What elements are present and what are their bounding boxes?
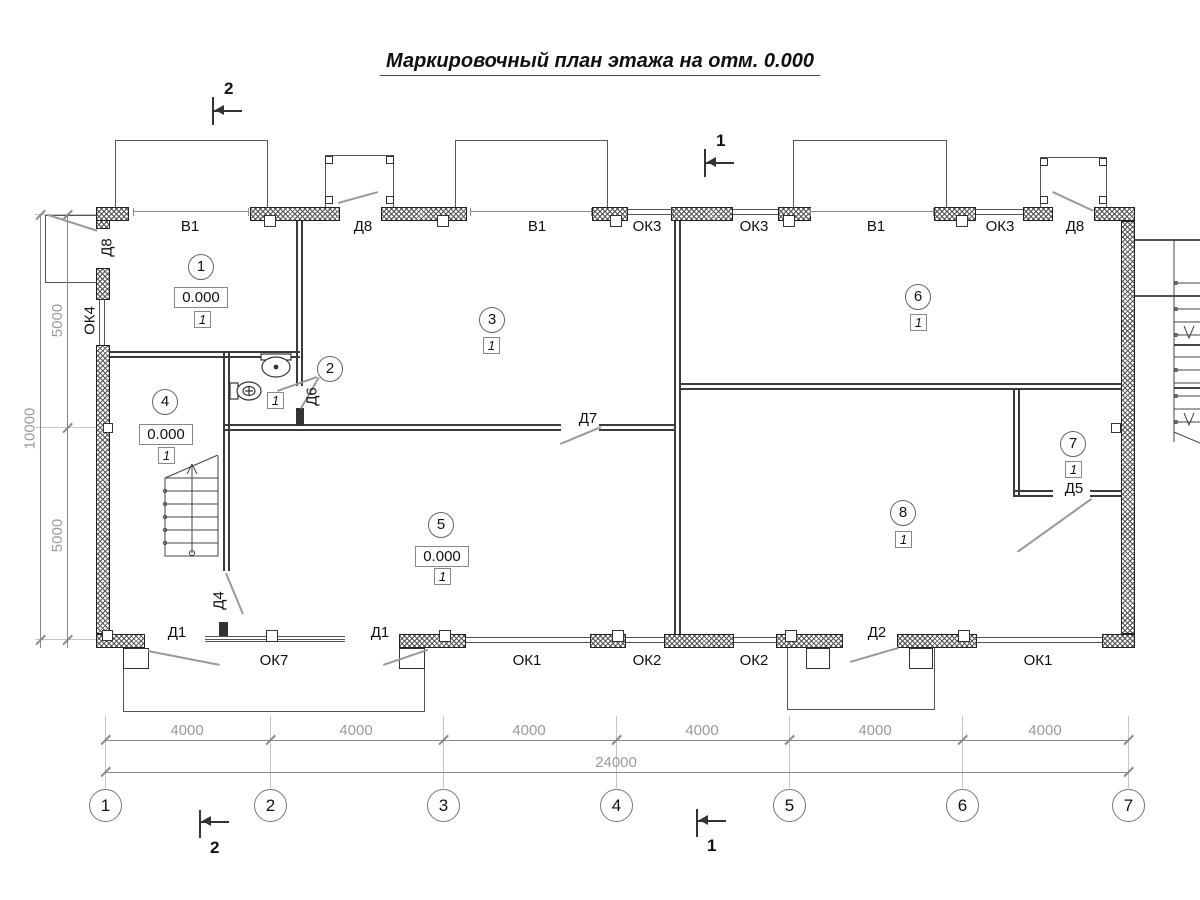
window-ok2 [734,637,776,643]
opening-label-ok3: ОК3 [978,218,1022,235]
room-finish-mark: 1 [1065,461,1082,478]
opening-label-ok2: ОК2 [625,652,669,669]
wall [381,207,467,221]
drawing-title: Маркировочный план этажа на отм. 0.000 [380,50,820,76]
side-porch [45,215,97,283]
dimension-value: 5000 [49,508,66,563]
opening-label-d1: Д1 [155,624,199,641]
section-mark-line [199,810,201,838]
dimension-value: 4000 [845,722,905,739]
opening-label-ok3: ОК3 [732,218,776,235]
section-arrow-icon [707,157,716,167]
opening-label-ok1: ОК1 [1016,652,1060,669]
window-ok3 [976,209,1023,215]
dimension-total: 10000 [22,394,39,464]
extension-line [443,716,444,788]
pilaster [264,215,276,227]
room-number: 2 [317,356,343,382]
opening-label-d8: Д8 [1053,218,1097,235]
pilaster [266,630,278,642]
partition [1013,490,1053,497]
window-ok1 [466,637,590,643]
axis-bubble: 4 [600,789,633,822]
opening-label-d2: Д2 [855,624,899,641]
door-swing-d4 [226,573,244,614]
room-finish-mark: 1 [483,337,500,354]
dimension-value: 4000 [326,722,386,739]
canopy-outline [793,140,947,207]
door-label-d6: Д6 [304,375,321,419]
canopy-post [1040,196,1048,204]
room-finish-mark: 1 [434,568,451,585]
section-arrow-icon [699,815,708,825]
stairs [160,448,224,560]
wall [96,345,110,634]
partition [1013,390,1020,497]
window-ok1 [977,637,1102,643]
pilaster [102,630,113,641]
canopy-outline [115,140,268,207]
room-number: 8 [890,500,916,526]
wall [399,634,466,648]
room-number: 7 [1060,431,1086,457]
pilaster [783,215,795,227]
entrance-canopy [325,155,394,207]
pilaster [1111,423,1121,433]
window-v1 [470,211,592,212]
window-ok2 [626,637,664,643]
opening-label-d8: Д8 [341,218,385,235]
opening-label-ok4: ОК4 [82,299,99,343]
window-ok4 [99,300,105,345]
axis-bubble: 2 [254,789,287,822]
room-number: 6 [905,284,931,310]
partition [223,424,561,431]
door-label-d4: Д4 [211,579,228,623]
opening-label-ok2: ОК2 [732,652,776,669]
pilaster [612,630,624,642]
canopy-post [325,196,333,204]
canopy-post [1040,158,1048,166]
pilaster [958,630,970,642]
entrance-canopy [1040,157,1107,207]
room-number: 5 [428,512,454,538]
extension-line [270,716,271,788]
room-number: 3 [479,307,505,333]
room-finish-mark: 1 [194,311,211,328]
section-label: 2 [224,79,233,99]
room-finish-mark: 1 [895,531,912,548]
window-v1 [133,211,249,212]
room-number: 4 [152,389,178,415]
extension-line [789,716,790,788]
pilaster [785,630,797,642]
room-finish-mark: 1 [910,314,927,331]
drawing-title-wrap: Маркировочный план этажа на отм. 0.000 [0,50,1200,73]
opening-label-v1: В1 [854,218,898,235]
wall [1102,634,1135,648]
window-v1 [810,211,934,212]
room-elevation: 0.000 [415,546,469,567]
axis-bubble: 7 [1112,789,1145,822]
wall [934,207,976,221]
pilaster [956,215,968,227]
porch-step [909,648,933,669]
pilaster [103,423,113,433]
wall [96,207,129,221]
wall [671,207,733,221]
porch-step [123,648,149,669]
canopy-post [1099,196,1107,204]
opening-label-ok1: ОК1 [505,652,549,669]
dimension-value: 4000 [499,722,559,739]
axis-bubble: 1 [89,789,122,822]
wall [1121,221,1135,634]
canopy-post [1099,158,1107,166]
dimension-value: 5000 [49,293,66,348]
wall [1023,207,1053,221]
window-ok3 [733,209,778,215]
axis-bubble: 5 [773,789,806,822]
opening-label-ok7: ОК7 [252,652,296,669]
dimension-total: 24000 [586,754,646,771]
opening-label-v1: В1 [168,218,212,235]
pilaster [610,215,622,227]
pilaster [439,630,451,642]
door-swing-d5 [1017,498,1092,552]
canopy-outline [455,140,608,207]
section-arrow-icon [215,105,224,115]
door-swing-d7 [560,426,601,444]
fire-escape-stair [1162,230,1200,445]
section-label: 1 [716,131,725,151]
extension-line [962,716,963,788]
opening-label-d8: Д8 [99,226,116,270]
door-label-d7: Д7 [566,410,610,427]
opening-label-ok3: ОК3 [625,218,669,235]
porch-step [806,648,830,669]
partition [674,221,681,634]
canopy-post [386,196,394,204]
room-elevation: 0.000 [139,424,193,445]
axis-bubble: 6 [946,789,979,822]
wall [1094,207,1135,221]
door-label-d5: Д5 [1052,480,1096,497]
window-ok3 [628,209,674,215]
section-arrow-icon [202,816,211,826]
extension-line [105,716,106,788]
section-label: 2 [210,838,219,858]
partition [681,383,1121,390]
dimension-line [105,772,1129,773]
room-elevation: 0.000 [174,287,228,308]
wall [96,268,110,300]
canopy-post [386,156,394,164]
section-label: 1 [707,836,716,856]
room-number: 1 [188,254,214,280]
dimension-value: 4000 [672,722,732,739]
dimension-line [67,215,68,648]
extension-line [1128,716,1129,788]
door-jamb [219,622,228,636]
canopy-post [325,156,333,164]
partition [599,424,676,431]
room-finish-mark: 1 [267,392,284,409]
pilaster [437,215,449,227]
floor-plan-drawing: Маркировочный план этажа на отм. 0.000 [0,0,1200,900]
dimension-line [40,215,41,648]
opening-label-v1: В1 [515,218,559,235]
wall [664,634,734,648]
dimension-value: 4000 [1015,722,1075,739]
dimension-value: 4000 [157,722,217,739]
room-finish-mark: 1 [158,447,175,464]
extension-line [616,716,617,788]
opening-label-d1: Д1 [358,624,402,641]
partition [296,221,303,386]
sink-and-toilet [225,350,297,412]
section-mark-line [696,809,698,837]
axis-bubble: 3 [427,789,460,822]
